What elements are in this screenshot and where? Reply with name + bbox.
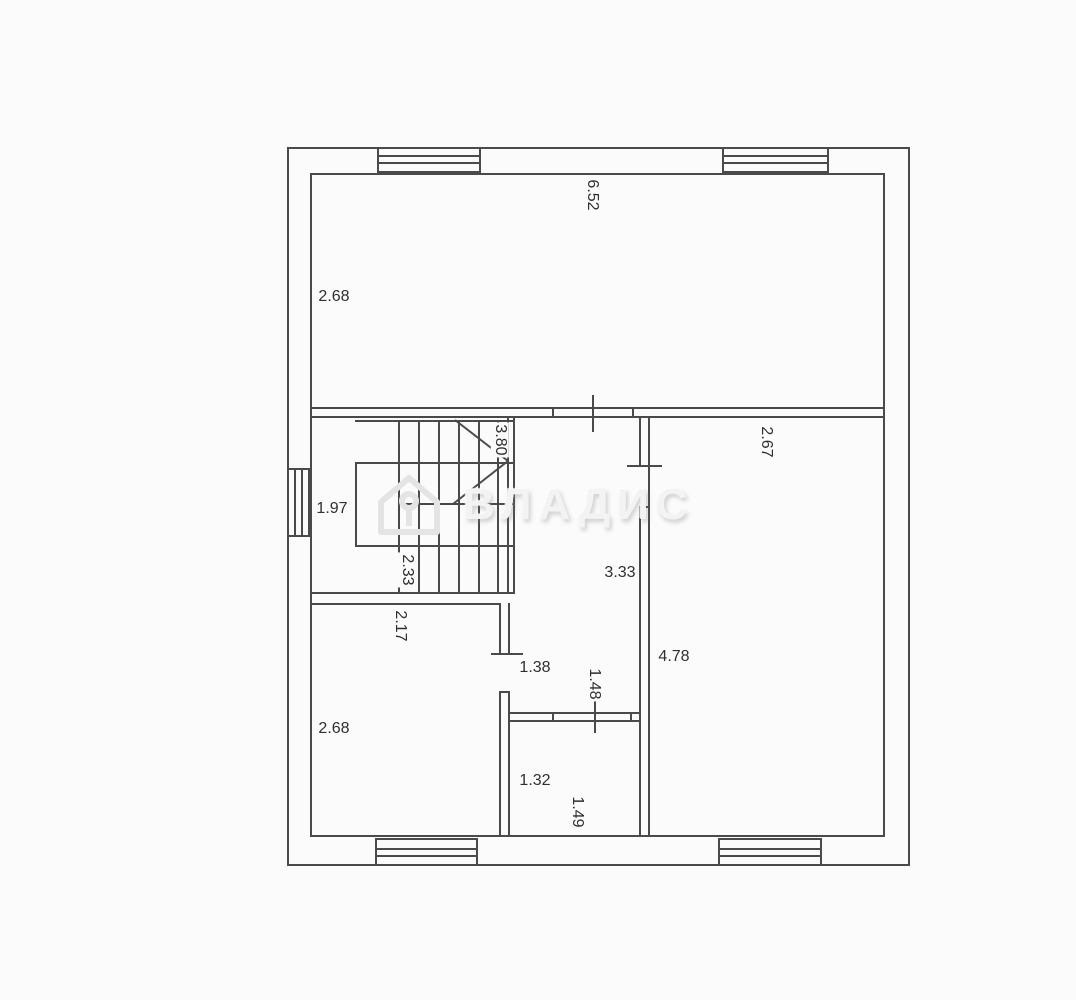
opening-tick — [594, 700, 596, 733]
wall-line — [648, 418, 650, 837]
window — [722, 147, 829, 173]
wall-line — [508, 603, 510, 654]
dim-wc-width-2: 1.49 — [568, 794, 586, 829]
dim-top-room-height: 2.68 — [316, 288, 351, 306]
dim-wc-width: 1.48 — [585, 666, 603, 701]
dim-stair-depth: 1.97 — [314, 500, 349, 518]
door-jamb-tick — [499, 691, 510, 693]
wall-line — [499, 603, 501, 654]
window-pane-line — [720, 848, 820, 850]
window-pane-line — [377, 855, 476, 857]
dim-left-room-width: 2.17 — [391, 608, 409, 643]
door-jamb-tick — [627, 465, 662, 467]
wall-line — [312, 603, 499, 605]
window-pane-line — [294, 470, 296, 535]
window-pane-line — [724, 162, 827, 164]
dim-right-room-width: 2.67 — [757, 424, 775, 459]
window-pane-line — [379, 162, 479, 164]
window-pane-line — [301, 470, 303, 535]
dim-right-room-height: 4.78 — [656, 648, 691, 666]
door-jamb-tick — [491, 653, 523, 655]
door-jamb-tick — [639, 506, 650, 508]
dim-top-room-width: 6.52 — [583, 177, 601, 212]
dim-hall-width: 1.38 — [517, 659, 552, 677]
window-pane-line — [379, 155, 479, 157]
wall-line — [508, 712, 639, 714]
window-pane-line — [377, 848, 476, 850]
window-pane-line — [720, 855, 820, 857]
window — [377, 147, 481, 173]
window — [718, 838, 822, 866]
wall-line — [499, 692, 501, 837]
door-jamb-tick — [552, 712, 554, 722]
window — [375, 838, 478, 866]
window — [287, 468, 310, 537]
dim-stair-width: 2.33 — [398, 552, 416, 587]
door-jamb-tick — [630, 712, 632, 722]
dim-stair-run: 3.80 — [491, 422, 509, 457]
wall-line — [639, 418, 641, 465]
dim-left-room-height: 2.68 — [316, 720, 351, 738]
dim-hall-length: 3.33 — [602, 564, 637, 582]
dim-wc-height: 1.32 — [517, 772, 552, 790]
wall-line — [508, 720, 639, 722]
wall-line — [639, 507, 641, 837]
floor-plan: 6.52 2.68 2.67 3.80 1.97 2.33 2.17 3.33 … — [0, 0, 1076, 1000]
stair-direction-arrow — [0, 0, 1076, 1000]
wall-line — [310, 592, 515, 594]
window-pane-line — [724, 155, 827, 157]
